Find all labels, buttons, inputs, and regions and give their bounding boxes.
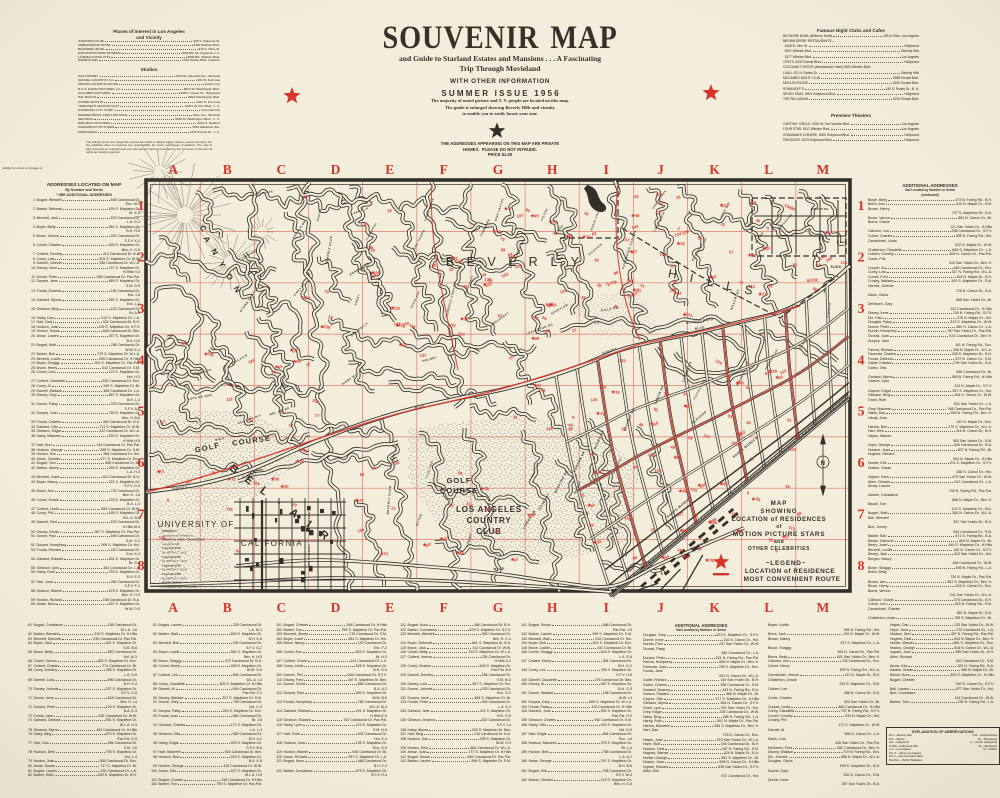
svg-text:D: D [331, 600, 341, 615]
svg-text:107: 107 [676, 511, 684, 517]
svg-text:J: J [657, 600, 664, 615]
svg-text:WESLEY H. LAKE - LOS ANGELES: WESLEY H. LAKE - LOS ANGELES [162, 538, 205, 542]
svg-text:148: 148 [429, 262, 438, 269]
svg-text:5: 5 [858, 405, 865, 420]
svg-text:92: 92 [751, 252, 757, 257]
svg-text:I: I [604, 600, 609, 615]
svg-text:B: B [223, 600, 232, 615]
svg-text:UNIVERSITY OF: UNIVERSITY OF [158, 520, 235, 529]
svg-text:92: 92 [677, 455, 683, 461]
svg-text:TOWER RD: TOWER RD [479, 218, 491, 237]
svg-text:Copyright 1956: Copyright 1956 [162, 572, 181, 576]
svg-text:55: 55 [723, 481, 728, 486]
svg-text:HILGARD: HILGARD [307, 512, 312, 528]
svg-text:49: 49 [463, 284, 468, 289]
svg-text:By MARTHA T. LAKE: By MARTHA T. LAKE [162, 568, 187, 572]
svg-text:32: 32 [235, 548, 242, 554]
svg-text:48: 48 [670, 445, 675, 450]
svg-text:C: C [277, 600, 287, 615]
svg-text:33: 33 [658, 201, 663, 206]
svg-text:32: 32 [449, 266, 455, 272]
svg-text:8064 W. 26th St.: 8064 W. 26th St. [162, 581, 182, 585]
svg-text:106: 106 [681, 228, 690, 236]
svg-text:27: 27 [390, 505, 397, 512]
svg-text:WESTWOOD: WESTWOOD [307, 544, 311, 567]
svg-text:G: G [493, 600, 504, 615]
svg-text:Copyright 1949: Copyright 1949 [162, 546, 181, 550]
svg-text:A: A [168, 600, 178, 615]
svg-text:61: 61 [551, 301, 558, 308]
svg-text:44: 44 [553, 231, 558, 236]
svg-text:111: 111 [305, 295, 313, 301]
svg-text:10: 10 [328, 314, 335, 320]
svg-text:54: 54 [677, 291, 683, 296]
svg-text:125: 125 [247, 357, 256, 365]
svg-text:3: 3 [858, 302, 865, 317]
svg-text:145: 145 [591, 397, 599, 402]
svg-text:37: 37 [572, 327, 578, 333]
svg-text:VERDE OAK: VERDE OAK [410, 290, 421, 309]
svg-text:FALCON: FALCON [540, 208, 548, 221]
svg-text:123: 123 [451, 256, 459, 261]
svg-text:50: 50 [274, 476, 279, 481]
svg-text:45: 45 [525, 207, 532, 214]
svg-text:Los Angeles, Cal. YO. Q-2103: Los Angeles, Cal. YO. Q-2103 [162, 585, 197, 589]
svg-text:55: 55 [755, 496, 762, 503]
svg-text:BLVD.: BLVD. [494, 567, 507, 572]
svg-text:E: E [467, 255, 475, 269]
svg-text:29: 29 [596, 282, 603, 289]
svg-text:L: L [551, 255, 558, 269]
svg-text:OTHER CELEBRITIES: OTHER CELEBRITIES [748, 546, 810, 552]
svg-text:70: 70 [324, 289, 331, 295]
svg-text:H: H [547, 600, 558, 615]
svg-text:L: L [725, 279, 735, 294]
svg-text:100: 100 [811, 277, 819, 282]
svg-text:4: 4 [858, 353, 865, 368]
svg-text:29: 29 [687, 435, 694, 442]
svg-text:and: and [774, 539, 784, 545]
svg-text:59: 59 [501, 248, 506, 253]
svg-text:147: 147 [357, 498, 365, 503]
svg-text:M: M [817, 162, 830, 177]
svg-text:SUNS: SUNS [831, 265, 842, 269]
svg-text:128: 128 [770, 368, 778, 374]
svg-text:67: 67 [305, 361, 312, 368]
svg-text:COURSE: COURSE [440, 486, 478, 495]
svg-text:C: C [277, 162, 287, 177]
svg-text:DEEP CANYON: DEEP CANYON [494, 198, 504, 222]
svg-text:BEVERLY GLEN: BEVERLY GLEN [325, 235, 334, 264]
svg-text:35: 35 [746, 420, 751, 425]
svg-text:85: 85 [793, 262, 799, 268]
svg-text:122: 122 [789, 447, 797, 452]
svg-text:K: K [709, 600, 720, 615]
svg-text:MOTION PICTURE STARS: MOTION PICTURE STARS [733, 531, 825, 538]
svg-text:8: 8 [858, 559, 865, 574]
svg-text:99: 99 [535, 336, 541, 341]
svg-text:E: E [385, 600, 394, 615]
svg-text:COUNTRY: COUNTRY [467, 516, 512, 525]
svg-text:By MARTHA T. LAKE: By MARTHA T. LAKE [162, 551, 187, 555]
svg-text:49: 49 [534, 213, 540, 218]
svg-text:70: 70 [720, 221, 727, 228]
svg-text:B: B [223, 162, 232, 177]
svg-text:141: 141 [690, 486, 699, 493]
svg-text:J: J [657, 162, 664, 177]
svg-text:PICKFAIR: PICKFAIR [588, 242, 604, 256]
svg-text:33: 33 [675, 194, 682, 200]
svg-text:2: 2 [370, 200, 374, 205]
svg-text:6: 6 [746, 490, 750, 496]
svg-text:of: of [776, 524, 782, 530]
svg-text:2: 2 [858, 251, 865, 266]
svg-text:82: 82 [711, 274, 717, 280]
svg-text:~LEGEND~: ~LEGEND~ [766, 560, 807, 567]
svg-text:62: 62 [360, 472, 365, 477]
svg-text:K: K [709, 162, 720, 177]
svg-text:146: 146 [373, 270, 381, 275]
svg-text:SHOWING: SHOWING [760, 508, 797, 515]
svg-text:LOCATION of RESIDENCES: LOCATION of RESIDENCES [732, 516, 827, 523]
svg-text:57: 57 [729, 249, 735, 254]
svg-text:114: 114 [840, 260, 848, 266]
svg-text:A: A [168, 162, 178, 177]
svg-text:93: 93 [778, 374, 785, 381]
svg-text:88: 88 [613, 269, 620, 276]
svg-text:GOLF: GOLF [447, 476, 472, 485]
svg-text:121: 121 [685, 311, 694, 318]
svg-text:CINTHIA: CINTHIA [826, 302, 831, 318]
svg-text:7: 7 [858, 507, 865, 522]
svg-text:73: 73 [500, 236, 507, 243]
svg-text:133: 133 [619, 358, 627, 364]
svg-text:L: L [764, 162, 773, 177]
svg-text:94: 94 [583, 210, 590, 217]
svg-text:D: D [331, 162, 341, 177]
svg-text:59: 59 [693, 513, 699, 519]
svg-text:G: G [493, 162, 504, 177]
svg-text:38: 38 [464, 316, 469, 321]
svg-text:111: 111 [226, 396, 234, 402]
svg-text:96: 96 [632, 555, 639, 561]
svg-text:146: 146 [408, 322, 417, 330]
svg-text:L: L [764, 600, 773, 615]
svg-text:KENTER: KENTER [316, 208, 322, 222]
svg-text:48: 48 [638, 422, 644, 428]
svg-text:131: 131 [419, 352, 427, 358]
svg-text:137: 137 [703, 432, 712, 440]
svg-text:77: 77 [586, 234, 592, 240]
svg-text:Copyright 1940: Copyright 1940 [162, 542, 180, 546]
svg-text:124: 124 [715, 358, 724, 366]
svg-text:122: 122 [682, 528, 690, 533]
svg-text:Copyright 1950: Copyright 1950 [162, 555, 181, 559]
svg-text:138: 138 [647, 452, 655, 458]
svg-text:WOEWING: WOEWING [811, 207, 829, 211]
svg-text:Y: Y [571, 255, 580, 269]
svg-text:143: 143 [631, 223, 640, 230]
svg-text:91: 91 [787, 417, 793, 423]
svg-text:101: 101 [516, 212, 525, 219]
svg-text:99: 99 [764, 245, 771, 252]
svg-text:104: 104 [654, 468, 662, 473]
svg-text:LOCATION of RESIDENCE: LOCATION of RESIDENCE [745, 568, 836, 575]
svg-text:WYTON: WYTON [415, 513, 423, 526]
svg-text:M: M [817, 600, 830, 615]
svg-text:Y: Y [217, 260, 228, 270]
svg-text:E: E [385, 162, 394, 177]
svg-text:Copyright 1953: Copyright 1953 [162, 563, 181, 567]
svg-text:N: N [821, 461, 826, 467]
svg-text:ORIGINALLY: ORIGINALLY [162, 529, 178, 533]
svg-text:135: 135 [226, 506, 234, 512]
svg-text:21: 21 [383, 551, 389, 557]
svg-text:DOHENY ROAD: DOHENY ROAD [686, 317, 715, 325]
svg-text:20: 20 [621, 426, 626, 431]
svg-text:8: 8 [571, 414, 576, 420]
svg-text:30: 30 [755, 218, 761, 224]
svg-text:C: C [198, 224, 209, 234]
svg-text:MOST CONVENIENT ROUTE: MOST CONVENIENT ROUTE [744, 576, 841, 583]
svg-text:CALIFORNIA: CALIFORNIA [241, 539, 303, 548]
svg-text:94: 94 [541, 315, 548, 322]
svg-text:42: 42 [680, 241, 686, 247]
svg-text:AWBRY: AWBRY [354, 294, 361, 306]
svg-text:MONTE CIELO: MONTE CIELO [590, 209, 601, 232]
svg-text:112: 112 [748, 284, 756, 290]
svg-text:By MARTHA T. LAKE: By MARTHA T. LAKE [162, 559, 187, 563]
svg-text:153: 153 [501, 271, 510, 278]
svg-text:109: 109 [357, 527, 366, 534]
svg-text:H: H [547, 162, 558, 177]
svg-text:60: 60 [696, 545, 703, 552]
svg-text:123: 123 [393, 305, 401, 310]
svg-text:Compiled and Published by: Compiled and Published by [162, 533, 194, 537]
svg-text:43: 43 [615, 389, 621, 395]
svg-text:71: 71 [738, 279, 745, 286]
svg-text:MAP: MAP [771, 500, 788, 507]
svg-text:83: 83 [739, 380, 745, 385]
svg-text:16: 16 [487, 278, 494, 285]
svg-text:28: 28 [785, 484, 791, 490]
svg-text:9: 9 [766, 225, 770, 231]
svg-text:10: 10 [284, 484, 289, 489]
svg-text:29: 29 [634, 194, 640, 200]
svg-text:63: 63 [277, 364, 284, 370]
svg-text:129: 129 [599, 384, 607, 390]
svg-text:53: 53 [653, 406, 660, 412]
svg-text:82: 82 [370, 247, 376, 253]
svg-text:I: I [689, 271, 696, 285]
svg-text:130: 130 [392, 460, 401, 467]
svg-text:6: 6 [858, 456, 865, 471]
svg-text:V: V [487, 255, 496, 269]
svg-text:48: 48 [635, 213, 641, 219]
svg-text:A: A [287, 506, 301, 521]
svg-text:F: F [440, 600, 448, 615]
svg-text:18: 18 [387, 208, 393, 214]
svg-text:F: F [440, 162, 448, 177]
svg-text:141: 141 [546, 426, 554, 432]
svg-text:By MARTHA T. LAKE: By MARTHA T. LAKE [162, 576, 187, 580]
svg-text:I: I [604, 162, 609, 177]
svg-text:18: 18 [594, 257, 601, 263]
svg-text:1: 1 [858, 199, 865, 214]
svg-text:17: 17 [314, 412, 320, 418]
svg-text:R: R [529, 255, 538, 269]
